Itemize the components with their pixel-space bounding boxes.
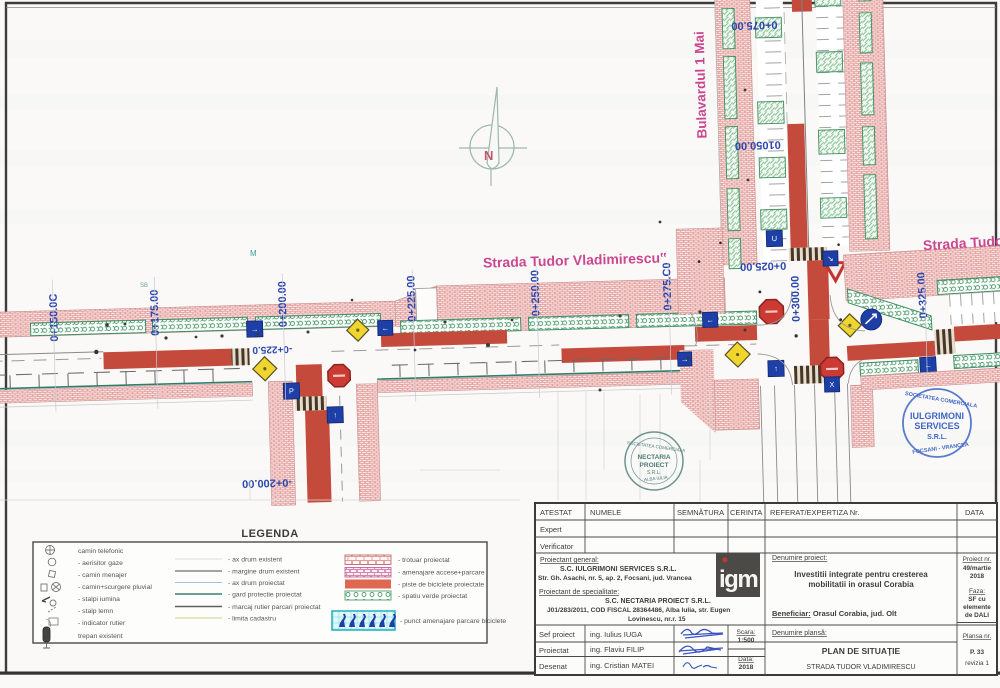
svg-text:SEMNĂTURA: SEMNĂTURA [677,508,724,517]
svg-text:01050.00: 01050.00 [735,138,781,151]
svg-text:0+250.00: 0+250.00 [529,270,542,317]
svg-text:IULGRIMONI: IULGRIMONI [910,411,964,421]
svg-text:Denumire proiect:: Denumire proiect: [772,555,827,562]
svg-text:Faza:: Faza: [969,588,985,595]
svg-text:- limita cadastru: - limita cadastru [228,615,276,622]
svg-text:SERVICES: SERVICES [914,421,959,431]
svg-text:Str. Gh. Asachi, nr. 5, ap. 2,: Str. Gh. Asachi, nr. 5, ap. 2, Focsani, … [538,575,692,582]
svg-text:- indicator rutier: - indicator rutier [78,620,126,627]
svg-text:- aerisitor gaze: - aerisitor gaze [78,560,123,567]
svg-text:Investitii integrate pentru cr: Investitii integrate pentru cresterea [794,570,928,579]
svg-text:0+225.00: 0+225.00 [405,275,418,322]
svg-text:PROIECT: PROIECT [640,462,669,469]
svg-text:SF cu: SF cu [968,596,985,603]
svg-text:Denumire plansă:: Denumire plansă: [772,630,827,637]
svg-text:- ax drum proiectat: - ax drum proiectat [228,580,285,587]
svg-text:0+275.C0: 0+275.C0 [661,262,674,310]
svg-text:- marcaj rutier parcari proiec: - marcaj rutier parcari proiectat [228,604,321,611]
svg-text:Sef proiect: Sef proiect [539,630,576,639]
svg-text:igm: igm [719,566,757,593]
svg-text:- punct amenajare parcare bici: - punct amenajare parcare biciclete [400,618,506,625]
svg-text:DATA: DATA [965,508,984,517]
svg-text:de DALI: de DALI [965,612,989,619]
svg-text:-0+200.00: -0+200.00 [242,476,292,489]
svg-text:Proiectat: Proiectat [539,646,570,655]
svg-text:2018: 2018 [970,573,985,580]
svg-text:S.C. NECTARIA PROIECT S.R.L.: S.C. NECTARIA PROIECT S.R.L. [605,598,711,605]
svg-text:U: U [772,234,778,243]
svg-text:- spatiu verde proiectat: - spatiu verde proiectat [398,593,467,600]
svg-text:Plansa nr.: Plansa nr. [963,633,992,640]
svg-text:Data:: Data: [738,656,754,663]
svg-text:Lovinescu, nr.r. 15: Lovinescu, nr.r. 15 [628,616,686,623]
svg-text:Desenat: Desenat [539,662,568,671]
svg-text:- camin menajer: - camin menajer [78,572,127,579]
svg-text:0+025.00: 0+025.00 [740,259,787,272]
svg-text:Expert: Expert [540,525,563,534]
svg-text:ing. Flaviu FILIP: ing. Flaviu FILIP [590,645,644,654]
svg-text:Proiectant de specialitate:: Proiectant de specialitate: [539,589,619,596]
svg-text:PLAN DE SITUAŢIE: PLAN DE SITUAŢIE [822,646,901,656]
svg-text:ing. Iulius IUGA: ing. Iulius IUGA [590,630,642,639]
svg-text:S.C. IULGRIMONI SERVICES S.R.L: S.C. IULGRIMONI SERVICES S.R.L. [560,566,677,573]
svg-text:Beneficiar: Orasul Corabia, ju: Beneficiar: Orasul Corabia, jud. Olt [772,609,897,618]
svg-text:ATESTAT: ATESTAT [540,508,573,517]
svg-text:49/martie: 49/martie [963,565,992,572]
svg-text:→: → [251,325,259,334]
svg-text:ing. Cristian MATEI: ing. Cristian MATEI [590,661,654,670]
svg-text:0+075.00: 0+075.00 [731,18,778,31]
svg-text:NECTARIA: NECTARIA [637,454,670,461]
svg-text:2018: 2018 [739,664,754,671]
svg-text:trepan existent: trepan existent [78,633,123,640]
svg-text:revizia 1: revizia 1 [965,660,989,667]
svg-text:mobilitatii in orasul Corabia: mobilitatii in orasul Corabia [808,580,914,589]
svg-text:-0+225.0: -0+225.0 [252,343,292,355]
svg-text:- stalpi iumina: - stalpi iumina [78,596,120,603]
svg-text:←: ← [924,361,932,370]
svg-text:Bulavardul 1 Mai: Bulavardul 1 Mai [692,31,710,139]
svg-text:STRADA TUDOR VLADIMIRESCU: STRADA TUDOR VLADIMIRESCU [806,664,915,671]
svg-text:S.R.L.: S.R.L. [927,434,947,441]
svg-text:P: P [289,387,294,396]
svg-text:- amenajare accese+parcare: - amenajare accese+parcare [398,570,485,577]
svg-text:- piste de biciclete proiectat: - piste de biciclete proiectate [398,582,484,589]
svg-text:- ax drum existent: - ax drum existent [228,556,282,563]
svg-text:Proiectant general:: Proiectant general: [540,557,599,564]
svg-text:N: N [484,148,493,163]
svg-text:↑: ↑ [333,410,337,419]
svg-text:LEGENDA: LEGENDA [241,528,298,540]
svg-text:camin telefonic: camin telefonic [78,548,124,555]
svg-text:↘: ↘ [827,254,834,263]
svg-text:X: X [829,380,834,389]
svg-text:J01/283/2011, COD FISCAL 28364: J01/283/2011, COD FISCAL 28364486, Alba … [547,607,730,614]
svg-text:↑: ↑ [774,364,778,373]
svg-text:P. 33: P. 33 [970,649,985,656]
svg-text:←: ← [706,315,714,324]
svg-text:Proiect nr.: Proiect nr. [963,556,992,563]
svg-text:0+150.0C: 0+150.0C [48,293,61,341]
svg-text:REFERAT/EXPERTIZA Nr.: REFERAT/EXPERTIZA Nr. [770,508,859,517]
svg-text:Scara:: Scara: [736,629,755,636]
svg-text:CERINTA: CERINTA [730,508,762,517]
svg-text:SB: SB [140,283,148,289]
svg-text:Verificator: Verificator [540,542,574,551]
svg-text:elemente: elemente [963,604,991,611]
svg-text:1:500: 1:500 [738,637,755,644]
svg-text:←: ← [381,323,389,332]
svg-text:- gard protectie proiectat: - gard protectie proiectat [228,591,302,598]
svg-text:M: M [250,249,257,258]
svg-text:- trotuar proiectat: - trotuar proiectat [398,557,450,564]
svg-text:0+300.00: 0+300.00 [789,276,802,323]
svg-text:- margine drum existent: - margine drum existent [228,568,300,575]
svg-text:- stalp lemn: - stalp lemn [78,608,113,615]
svg-text:- camin+scurgere pluvial: - camin+scurgere pluvial [78,584,152,591]
svg-text:NUMELE: NUMELE [590,508,621,517]
